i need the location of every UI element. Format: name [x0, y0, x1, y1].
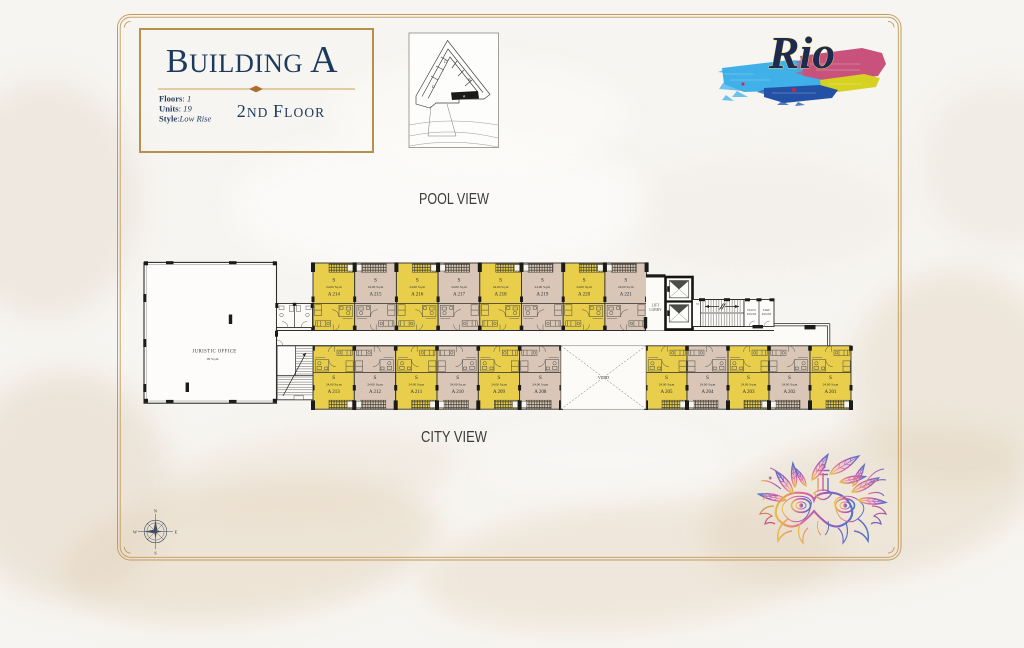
svg-text:24.00 Sq.m: 24.00 Sq.m: [491, 382, 507, 386]
svg-text:S: S: [498, 375, 501, 381]
svg-text:Floors: 1: Floors: 1: [159, 94, 191, 104]
svg-text:S: S: [583, 278, 586, 284]
svg-text:VOID: VOID: [598, 375, 610, 380]
svg-text:99 Sq.m.: 99 Sq.m.: [207, 357, 220, 361]
svg-text:A 213: A 213: [328, 390, 341, 395]
svg-text:24.00 Sq.m: 24.00 Sq.m: [451, 285, 467, 289]
svg-text:24.00 Sq.m: 24.00 Sq.m: [326, 382, 342, 386]
svg-text:N: N: [154, 509, 158, 514]
svg-text:24.00 Sq.m: 24.00 Sq.m: [493, 285, 509, 289]
svg-text:BUILDING A: BUILDING A: [166, 39, 338, 81]
svg-text:24.00 Sq.m: 24.00 Sq.m: [367, 382, 383, 386]
svg-text:A 204: A 204: [701, 390, 714, 395]
svg-text:Units: 19: Units: 19: [159, 104, 192, 114]
svg-text:A 216: A 216: [411, 293, 424, 298]
svg-text:2ND FLOOR: 2ND FLOOR: [237, 101, 326, 121]
svg-text:24.00 Sq.m: 24.00 Sq.m: [368, 285, 384, 289]
svg-text:C: C: [444, 59, 447, 64]
svg-text:A 217: A 217: [453, 293, 466, 298]
svg-text:24.00 Sq.m: 24.00 Sq.m: [409, 382, 425, 386]
svg-text:S: S: [788, 375, 791, 381]
svg-text:S: S: [332, 278, 335, 284]
svg-text:24.00 Sq.m: 24.00 Sq.m: [659, 382, 675, 386]
svg-text:24.00 Sq.m: 24.00 Sq.m: [409, 285, 425, 289]
svg-text:S: S: [499, 278, 502, 284]
svg-text:A 214: A 214: [328, 293, 341, 298]
svg-text:POOL VIEW: POOL VIEW: [419, 191, 489, 208]
svg-text:S: S: [458, 278, 461, 284]
svg-text:24.00 Sq.m: 24.00 Sq.m: [450, 382, 466, 386]
svg-text:LOBBY: LOBBY: [649, 308, 662, 312]
svg-text:S: S: [706, 375, 709, 381]
svg-text:A 211: A 211: [410, 390, 422, 395]
svg-text:24.00 Sq.m: 24.00 Sq.m: [326, 285, 342, 289]
svg-text:24.00 Sq.m: 24.00 Sq.m: [576, 285, 592, 289]
svg-text:S: S: [539, 375, 542, 381]
svg-text:24.00 Sq.m: 24.00 Sq.m: [782, 382, 798, 386]
svg-text:CITY VIEW: CITY VIEW: [421, 429, 487, 446]
svg-text:A 209: A 209: [493, 390, 506, 395]
svg-text:ROOM: ROOM: [762, 312, 772, 316]
svg-text:A 221: A 221: [620, 293, 633, 298]
svg-text:A 205: A 205: [660, 390, 673, 395]
svg-text:S: S: [747, 375, 750, 381]
svg-text:24.00 Sq.m: 24.00 Sq.m: [535, 285, 551, 289]
svg-text:A 220: A 220: [578, 293, 591, 298]
svg-text:S: S: [332, 375, 335, 381]
svg-text:24.00 Sq.m: 24.00 Sq.m: [823, 382, 839, 386]
svg-text:S: S: [374, 278, 377, 284]
svg-text:A 215: A 215: [369, 293, 382, 298]
svg-text:W: W: [133, 530, 138, 535]
svg-text:D: D: [432, 84, 435, 89]
svg-text:B: B: [468, 77, 471, 82]
svg-text:ROOM: ROOM: [747, 312, 757, 316]
svg-text:JURISTIC OFFICE: JURISTIC OFFICE: [192, 350, 236, 355]
svg-text:A 219: A 219: [536, 293, 549, 298]
svg-text:A 218: A 218: [495, 293, 508, 298]
svg-text:ST: ST: [696, 303, 700, 306]
svg-text:S: S: [374, 375, 377, 381]
svg-text:S: S: [665, 375, 668, 381]
svg-text:Style:Low Rise: Style:Low Rise: [159, 114, 211, 124]
svg-text:S: S: [541, 278, 544, 284]
svg-text:24.00 Sq.m: 24.00 Sq.m: [618, 285, 634, 289]
svg-text:A 210: A 210: [452, 390, 465, 395]
svg-text:E: E: [175, 530, 178, 535]
svg-text:S: S: [456, 375, 459, 381]
svg-text:S: S: [154, 551, 157, 556]
svg-text:S: S: [415, 375, 418, 381]
svg-text:A 201: A 201: [824, 390, 837, 395]
svg-text:S: S: [416, 278, 419, 284]
svg-text:24.00 Sq.m: 24.00 Sq.m: [533, 382, 549, 386]
svg-text:24.00 Sq.m: 24.00 Sq.m: [741, 382, 757, 386]
svg-text:24.00 Sq.m: 24.00 Sq.m: [700, 382, 716, 386]
svg-text:S: S: [829, 375, 832, 381]
svg-text:A 202: A 202: [783, 390, 796, 395]
svg-text:A 203: A 203: [742, 390, 755, 395]
svg-text:A 212: A 212: [369, 390, 382, 395]
svg-text:A 208: A 208: [534, 390, 547, 395]
svg-text:S: S: [624, 278, 627, 284]
svg-text:LIFT: LIFT: [652, 304, 660, 308]
svg-text:Rio: Rio: [768, 27, 835, 78]
